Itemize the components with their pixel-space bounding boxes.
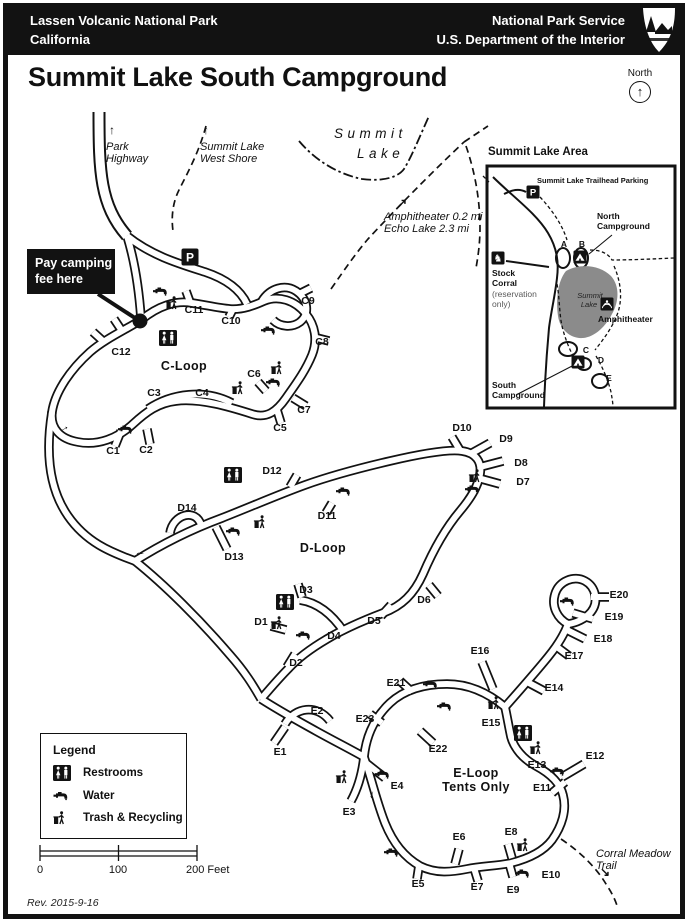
- map-label: E: [606, 374, 612, 384]
- site-label-e2: E2: [311, 706, 324, 718]
- site-label-c2: C2: [139, 445, 152, 457]
- map-label: NorthCampground: [597, 212, 650, 231]
- restrooms-icon: [53, 765, 77, 781]
- trash-icon: [232, 381, 245, 395]
- map-label: A: [561, 240, 567, 250]
- site-label-e17: E17: [565, 651, 584, 663]
- scale-100: 100: [109, 864, 127, 876]
- parking-sm-icon: P: [527, 186, 540, 199]
- one-way-arrow-icon: →: [56, 420, 72, 436]
- one-way-arrow-icon: →: [135, 549, 146, 561]
- site-label-e14: E14: [545, 683, 564, 695]
- legend-label: Water: [83, 790, 115, 802]
- site-label-d6: D6: [417, 595, 430, 607]
- map-label: ↗: [397, 197, 407, 211]
- map-label: Summit Lake Trailhead Parking: [537, 177, 648, 185]
- trash-icon: [336, 770, 349, 784]
- water-icon: [53, 791, 77, 802]
- map-label: Lake: [581, 301, 597, 309]
- trash-icon: [517, 838, 530, 852]
- restrooms-icon: [276, 594, 294, 610]
- svg-text:♞: ♞: [494, 254, 503, 265]
- site-label-e10: E10: [542, 870, 561, 882]
- legend: Legend Restrooms Water Trash & Recycling: [40, 733, 187, 839]
- inset-title: Summit Lake Area: [488, 146, 588, 158]
- site-label-c4: C4: [195, 388, 208, 400]
- map-label: E-LoopTents Only: [442, 766, 510, 794]
- trash-icon: [166, 296, 179, 310]
- water-icon: [226, 527, 241, 538]
- campground-map-page: Lassen Volcanic National Park California…: [0, 0, 688, 922]
- legend-label: Trash & Recycling: [83, 812, 183, 824]
- fee-notice: Pay camping fee here: [27, 249, 115, 294]
- site-label-d13: D13: [224, 552, 243, 564]
- site-label-c11: C11: [185, 305, 204, 317]
- water-icon: [266, 378, 281, 389]
- legend-item-restrooms: Restrooms: [53, 765, 186, 781]
- site-label-e1: E1: [274, 747, 287, 759]
- site-label-c3: C3: [147, 388, 160, 400]
- trash-icon: [53, 811, 77, 825]
- water-icon: [336, 487, 351, 498]
- water-icon: [384, 848, 399, 859]
- site-label-d5: D5: [367, 616, 380, 628]
- site-label-e15: E15: [482, 718, 501, 730]
- map-label: D-Loop: [300, 541, 346, 555]
- water-icon: [560, 597, 575, 608]
- legend-item-water: Water: [53, 790, 186, 802]
- site-label-e9: E9: [507, 885, 520, 897]
- site-label-e20: E20: [610, 590, 629, 602]
- site-label-c8: C8: [315, 337, 328, 349]
- site-label-e8: E8: [505, 827, 518, 839]
- site-label-d10: D10: [452, 423, 471, 435]
- site-label-e6: E6: [453, 832, 466, 844]
- trash-icon: [469, 469, 482, 483]
- map-label: (reservationonly): [492, 290, 537, 309]
- parking-icon: P: [182, 249, 199, 266]
- site-label-e12: E12: [586, 751, 605, 763]
- scale-0: 0: [37, 864, 43, 876]
- site-label-c9: C9: [301, 296, 314, 308]
- site-label-c5: C5: [273, 423, 286, 435]
- tent-icon: [574, 251, 587, 264]
- site-label-d2: D2: [289, 658, 302, 670]
- map-label: B: [579, 240, 585, 250]
- site-label-d3: D3: [299, 585, 312, 597]
- fee-line1: Pay camping: [35, 255, 115, 271]
- svg-text:P: P: [186, 251, 194, 265]
- site-label-d14: D14: [177, 503, 196, 515]
- trash-icon: [254, 515, 267, 529]
- map-label: SouthCampground: [492, 381, 545, 400]
- map-label: ParkHighway: [106, 141, 148, 166]
- map-label: ↘: [600, 866, 610, 880]
- map-label: C-Loop: [161, 359, 207, 373]
- horse-icon: ♞: [492, 252, 505, 265]
- map-label: Summit LakeWest Shore: [200, 141, 264, 166]
- trash-icon: [271, 616, 284, 630]
- water-icon: [437, 702, 452, 713]
- legend-title: Legend: [53, 743, 186, 757]
- site-label-d7: D7: [516, 477, 529, 489]
- amphi-icon: [601, 298, 614, 311]
- map-label: ↑: [203, 124, 209, 138]
- site-label-d12: D12: [262, 466, 281, 478]
- fee-line2: fee here: [35, 271, 115, 287]
- water-icon: [261, 326, 276, 337]
- svg-text:P: P: [530, 188, 537, 199]
- map-label: Amphitheater: [598, 315, 653, 325]
- map-label: ↑: [109, 124, 115, 138]
- site-label-c10: C10: [221, 316, 240, 328]
- map-label: D: [598, 356, 604, 366]
- trash-icon: [530, 741, 543, 755]
- revision-date: Rev. 2015-9-16: [27, 897, 99, 909]
- legend-label: Restrooms: [83, 767, 143, 779]
- tent-icon: [572, 356, 585, 369]
- site-label-d9: D9: [499, 434, 512, 446]
- water-icon: [118, 425, 133, 436]
- site-label-e18: E18: [594, 634, 613, 646]
- site-label-e23: E23: [356, 714, 375, 726]
- one-way-arrow-icon: →: [366, 788, 381, 802]
- restrooms-icon: [514, 725, 532, 741]
- site-label-d11: D11: [318, 511, 337, 523]
- site-label-e19: E19: [605, 612, 624, 624]
- water-icon: [296, 631, 311, 642]
- site-label-d4: D4: [327, 631, 340, 643]
- restrooms-icon: [159, 330, 177, 346]
- map-label: StockCorral: [492, 269, 517, 288]
- site-label-e13: E13: [528, 760, 547, 772]
- site-label-e11: E11: [533, 783, 551, 795]
- site-label-c1: C1: [106, 446, 119, 458]
- scale-200: 200 Feet: [186, 864, 229, 876]
- trash-icon: [488, 696, 501, 710]
- site-label-e7: E7: [471, 882, 484, 894]
- water-icon: [515, 869, 530, 880]
- map-label: Summit: [334, 126, 407, 141]
- site-label-d1: D1: [254, 617, 267, 629]
- water-icon: [375, 770, 390, 781]
- water-icon: [550, 767, 565, 778]
- water-icon: [423, 680, 438, 691]
- map-label: Amphitheater 0.2 miEcho Lake 2.3 mi: [384, 211, 482, 236]
- trash-icon: [271, 361, 284, 375]
- water-icon: [465, 485, 480, 496]
- site-label-e21: E21: [387, 678, 406, 690]
- site-label-c6: C6: [247, 369, 260, 381]
- legend-item-trash: Trash & Recycling: [53, 811, 186, 825]
- map-label: C: [583, 346, 589, 356]
- site-label-d8: D8: [514, 458, 527, 470]
- restrooms-icon: [224, 467, 242, 483]
- map-label: Lake: [357, 146, 404, 161]
- site-label-e5: E5: [412, 879, 425, 891]
- site-label-c12: C12: [111, 347, 130, 359]
- site-label-c7: C7: [297, 405, 310, 417]
- site-label-e3: E3: [343, 807, 356, 819]
- site-label-e4: E4: [391, 781, 404, 793]
- site-label-e16: E16: [471, 646, 490, 658]
